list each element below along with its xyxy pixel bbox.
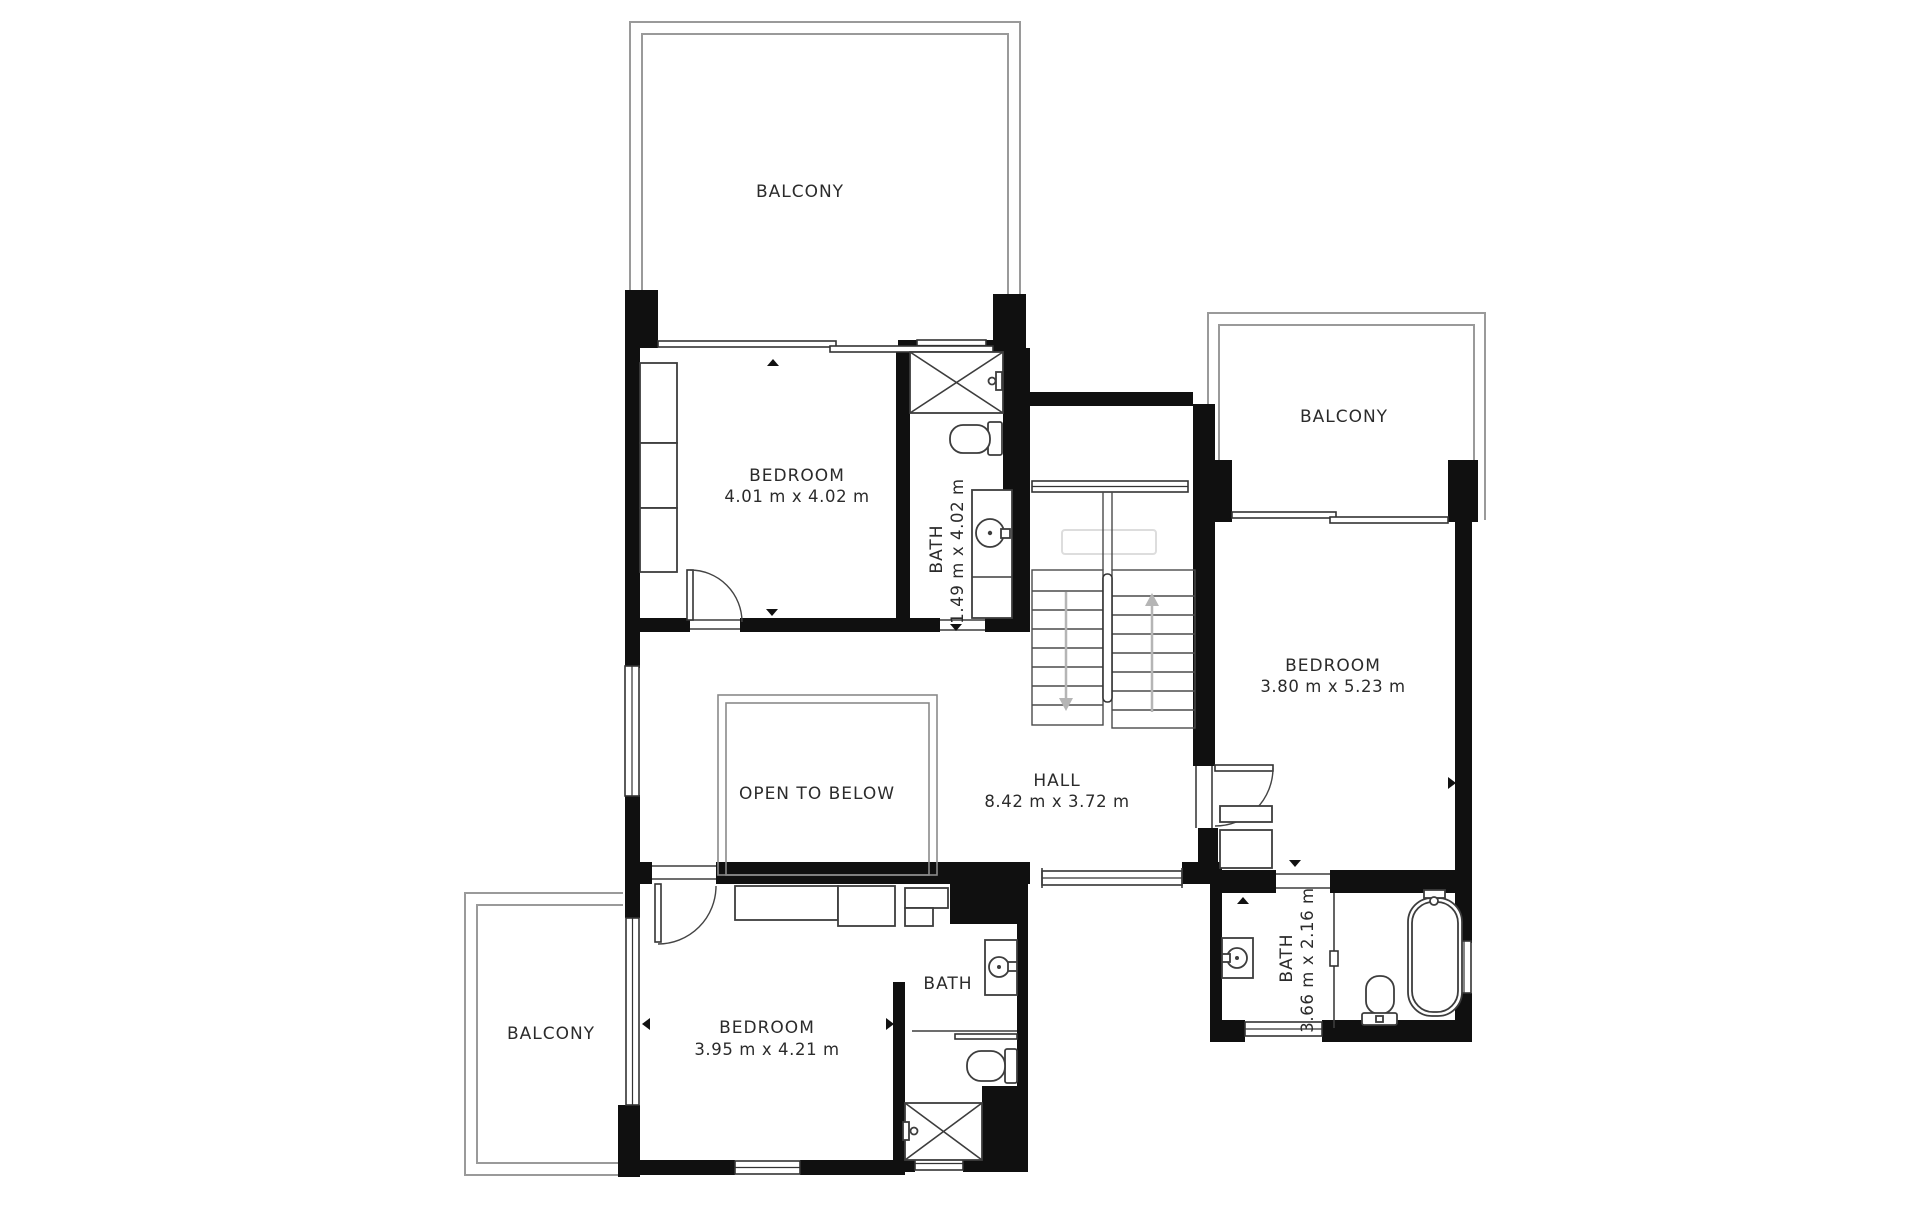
wall	[993, 294, 1026, 348]
room-dims-bedroom-right: 3.80 m x 5.23 m	[1260, 677, 1405, 696]
wall	[625, 290, 658, 348]
sink-counter	[1222, 938, 1253, 978]
wall	[896, 348, 910, 618]
room-dims-bath-right: 3.66 m x 2.16 m	[1298, 887, 1317, 1032]
wall	[1455, 520, 1472, 893]
sink-counter	[972, 490, 1012, 618]
shower	[903, 1103, 982, 1160]
room-label-bath-upper: BATH	[927, 524, 947, 573]
wall	[740, 618, 908, 632]
marker-triangle	[767, 359, 779, 366]
room-label-balcony-lower: BALCONY	[507, 1024, 595, 1044]
sliding-door	[1330, 517, 1448, 523]
floor-plan-svg: BALCONY BEDROOM 4.01 m x 4.02 m BATH 1.4…	[0, 0, 1920, 1206]
door-lower-bath-sliding	[912, 1031, 1017, 1039]
wall	[1330, 870, 1472, 893]
room-label-bedroom-right: BEDROOM	[1285, 656, 1381, 676]
bathtub-icon	[1408, 890, 1462, 1016]
marker-triangle	[886, 1018, 894, 1030]
room-dims-bedroom-upper: 4.01 m x 4.02 m	[724, 487, 869, 506]
floor-plan: BALCONY BEDROOM 4.01 m x 4.02 m BATH 1.4…	[0, 0, 1920, 1206]
stairs-ghost-outline	[1062, 530, 1156, 554]
room-label-bath-lower: BATH	[923, 974, 972, 994]
toilet-icon	[967, 1049, 1017, 1083]
room-label-balcony-right: BALCONY	[1300, 407, 1388, 427]
sink-counter	[985, 940, 1017, 995]
wardrobe	[640, 363, 677, 572]
wall	[1013, 392, 1193, 406]
wall	[716, 862, 1030, 884]
marker-triangle	[766, 609, 778, 616]
wall	[908, 618, 940, 632]
closet	[1220, 806, 1272, 868]
stairs-railing	[1103, 574, 1112, 702]
shower-head-icon	[903, 1122, 909, 1140]
wall	[625, 618, 690, 632]
wall	[950, 884, 1028, 924]
room-label-balcony-top: BALCONY	[756, 182, 844, 202]
room-label-bedroom-lower: BEDROOM	[719, 1018, 815, 1038]
wall	[1222, 870, 1276, 893]
room-label-open-to-below: OPEN TO BELOW	[739, 784, 895, 804]
room-label-bedroom-upper: BEDROOM	[749, 466, 845, 486]
toilet-icon	[950, 422, 1002, 455]
wall	[1210, 1020, 1245, 1042]
stair-flight-up	[1112, 570, 1195, 728]
wall	[1193, 404, 1215, 766]
wall	[1203, 460, 1232, 522]
shower-head-icon	[996, 372, 1002, 390]
wall	[985, 618, 1030, 632]
marker-triangle	[1289, 860, 1301, 867]
wall	[625, 1160, 735, 1175]
marker-triangle	[1448, 777, 1456, 789]
room-dims-bedroom-lower: 3.95 m x 4.21 m	[694, 1040, 839, 1059]
wall	[1210, 884, 1222, 1022]
door-upper-bedroom	[687, 570, 742, 633]
room-label-bath-right: BATH	[1277, 933, 1297, 982]
shower	[910, 352, 1003, 413]
marker-triangle	[642, 1018, 650, 1030]
wall	[893, 982, 905, 1174]
storage-boxes	[905, 888, 948, 926]
wall	[982, 1086, 1028, 1160]
wall	[800, 1160, 905, 1175]
wall	[625, 795, 640, 918]
marker-triangle	[1237, 897, 1249, 904]
room-dims-bath-upper: 1.49 m x 4.02 m	[948, 478, 967, 623]
bath-partition	[1330, 893, 1338, 1028]
sliding-door	[658, 341, 836, 347]
door-lower-bedroom	[652, 861, 716, 944]
wall	[1182, 862, 1222, 884]
stairs-up-arrow	[1145, 593, 1159, 606]
room-label-hall: HALL	[1033, 771, 1080, 791]
wardrobe	[735, 886, 895, 926]
room-dims-hall: 8.42 m x 3.72 m	[984, 792, 1129, 811]
toilet-icon	[1362, 976, 1397, 1025]
wall	[1448, 460, 1478, 522]
sliding-door	[1232, 512, 1336, 518]
stairs	[1032, 492, 1195, 728]
